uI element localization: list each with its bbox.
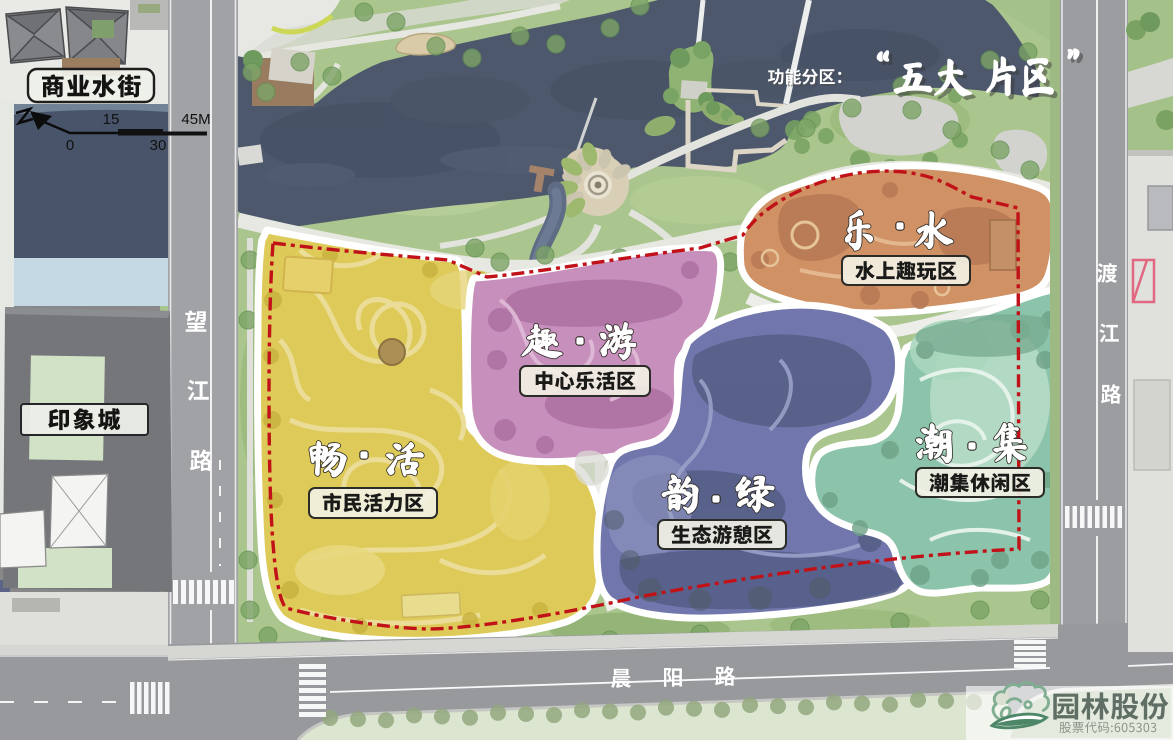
svg-text:45M: 45M <box>181 111 210 128</box>
svg-text:0: 0 <box>66 137 74 154</box>
svg-text:30: 30 <box>150 137 167 154</box>
svg-text:15: 15 <box>103 111 120 128</box>
